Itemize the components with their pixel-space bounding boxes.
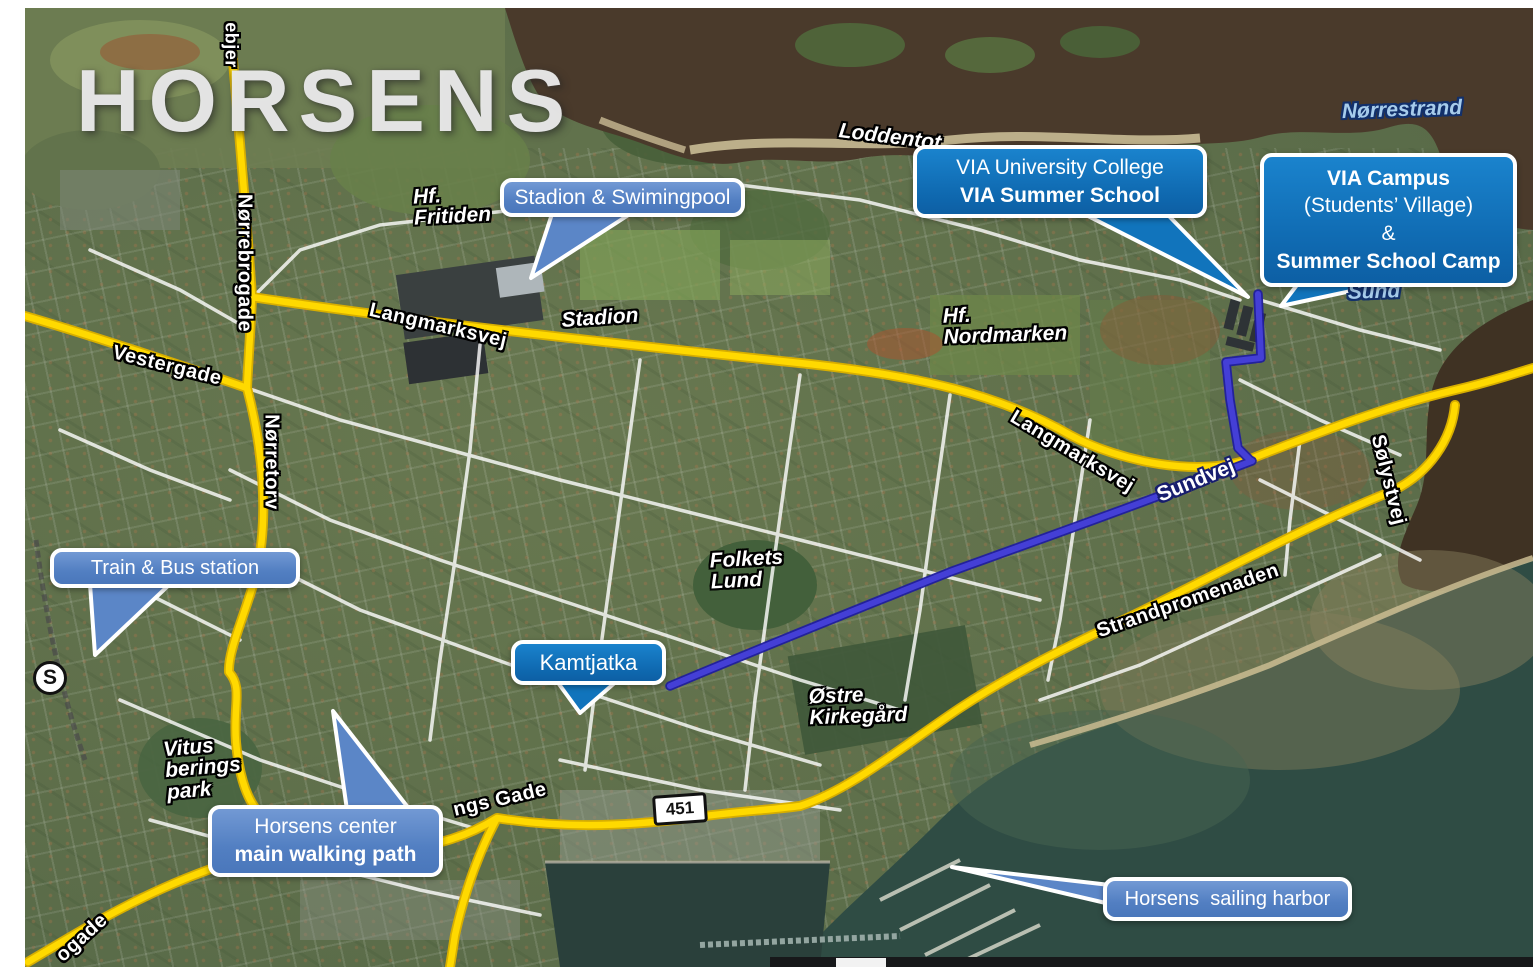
- road-number-badge: 451: [652, 792, 708, 826]
- bottom-strip-segment: [836, 958, 886, 967]
- station-badge: S: [33, 661, 67, 695]
- callout-train-bus: Train & Bus station: [50, 548, 300, 588]
- via-campus-buildings: [1220, 299, 1268, 353]
- callout-stadion-pool: Stadion & Swimingpool: [500, 178, 745, 217]
- slide: HORSENS Vestergade Nørrebrogade Nørretor…: [0, 0, 1533, 967]
- water-inlet-east: [1398, 300, 1533, 591]
- train-bus-tail: [90, 584, 170, 655]
- walking-route: [670, 294, 1261, 686]
- callout-via-campus: VIA Campus (Students’ Village) & Summer …: [1260, 153, 1517, 287]
- bottom-strip: [770, 957, 1533, 967]
- stadium-buildings: [394, 255, 555, 384]
- callout-kamtjatka: Kamtjatka: [511, 640, 666, 685]
- map-title: HORSENS: [76, 50, 574, 152]
- marina-piers: [700, 860, 1040, 965]
- sailing-harbor-tail: [952, 867, 1110, 904]
- via-university-tail: [1080, 212, 1248, 297]
- callout-sailing-harbor: Horsens sailing harbor: [1103, 877, 1352, 921]
- water-sea: [545, 550, 1533, 967]
- stadion-pool-tail: [531, 214, 630, 278]
- callout-via-university: VIA University College VIA Summer School: [913, 145, 1207, 218]
- horsens-center-tail: [333, 711, 410, 810]
- callout-horsens-center: Horsens center main walking path: [208, 805, 443, 877]
